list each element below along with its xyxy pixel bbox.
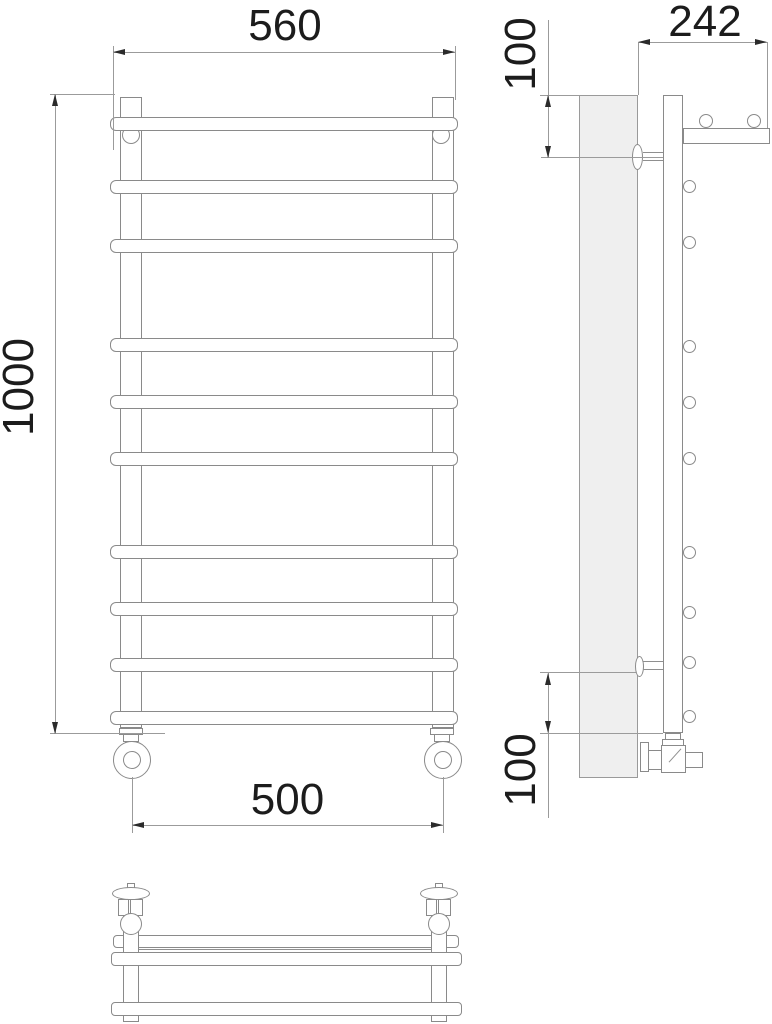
- dim-100b-arrow-down: [545, 721, 551, 733]
- side-rung-circle: [683, 340, 696, 353]
- side-rung-circle: [683, 656, 696, 669]
- plan-left-valve-round: [120, 913, 142, 935]
- right-valve-inner: [434, 751, 452, 769]
- dim-500-label: 500: [230, 778, 345, 822]
- dim-100t-arrow-down: [545, 146, 551, 158]
- side-rung-circle: [683, 546, 696, 559]
- dim-560-arrow-right: [443, 49, 455, 55]
- dim-500-line: [132, 825, 443, 826]
- drawing-canvas: 560 1000 500 242 100 100: [0, 0, 772, 1024]
- side-valve-pipe: [648, 750, 662, 770]
- dim-500-ext-right: [443, 777, 444, 833]
- dim-1000-ext-bottom: [50, 733, 165, 734]
- dim-560-ext-right: [455, 46, 456, 100]
- dim-100b-arrow-up: [545, 673, 551, 685]
- dim-560-arrow-left: [113, 49, 125, 55]
- dim-500-arrow-left: [132, 822, 144, 828]
- rung: [110, 338, 458, 352]
- wall-section: [579, 95, 638, 778]
- dim-242-label: 242: [650, 0, 760, 44]
- dim-242-ext-left: [638, 42, 639, 95]
- rung: [110, 658, 458, 672]
- rung: [110, 239, 458, 253]
- plan-bar-front: [111, 1002, 462, 1016]
- bottom-bracket-flange: [635, 656, 644, 677]
- bottom-bracket-screw: [643, 669, 663, 670]
- plan-bar-back: [113, 935, 459, 948]
- side-rung-circle: [683, 452, 696, 465]
- dim-1000-arrow-bottom: [52, 722, 58, 734]
- shelf-bar-circle: [699, 114, 713, 128]
- side-rung-circle: [683, 396, 696, 409]
- dim-100t-arrow-up: [545, 95, 551, 107]
- side-rung-circle: [683, 236, 696, 249]
- dim-242-ext-right: [767, 42, 768, 128]
- dim-560-line: [113, 52, 455, 53]
- rung: [110, 452, 458, 466]
- side-vertical-tube: [663, 95, 683, 733]
- plan-bar-middle: [111, 952, 462, 966]
- left-valve-inner: [123, 751, 141, 769]
- rung: [110, 395, 458, 409]
- dim-100t-label: 100: [499, 4, 543, 104]
- dim-100b-ext-top: [540, 672, 636, 673]
- side-valve-outlet: [685, 752, 703, 768]
- rung: [110, 602, 458, 616]
- top-bracket-screw: [643, 152, 663, 153]
- plan-right-valve-round: [428, 913, 450, 935]
- side-rung-circle: [683, 180, 696, 193]
- dim-242-arrow-left: [638, 39, 650, 45]
- dim-1000-line: [55, 94, 56, 734]
- dim-1000-ext-top: [50, 94, 115, 95]
- dim-500-arrow-right: [431, 822, 443, 828]
- dim-560-ext-left: [113, 46, 114, 150]
- side-rung-circle: [683, 710, 696, 723]
- dim-1000-label: 1000: [0, 317, 41, 457]
- bottom-bracket-screw: [643, 661, 663, 662]
- rung: [110, 545, 458, 559]
- plan-bar-edge-line: [128, 949, 446, 950]
- dim-100b-line: [548, 672, 549, 818]
- rung: [110, 117, 458, 131]
- dim-1000-arrow-top: [52, 94, 58, 106]
- dim-100t-ext-bottom: [541, 157, 663, 158]
- shelf-bar-circle: [747, 114, 761, 128]
- dim-100b-label: 100: [499, 720, 543, 820]
- dim-100b-ext-bottom: [540, 733, 663, 734]
- dim-100t-line: [548, 20, 549, 158]
- top-bracket-screw: [643, 160, 663, 161]
- shelf-bracket: [683, 128, 770, 144]
- rung: [110, 180, 458, 194]
- side-valve-body: [661, 745, 686, 773]
- rung: [110, 711, 458, 725]
- side-rung-circle: [683, 606, 696, 619]
- dim-560-label: 560: [230, 4, 340, 48]
